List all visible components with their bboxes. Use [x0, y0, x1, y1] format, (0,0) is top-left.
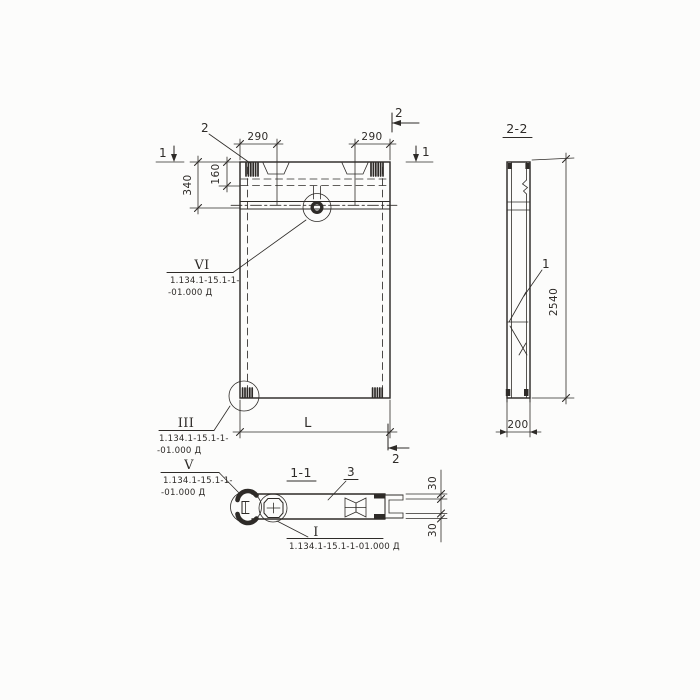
cut2-bottom-label: 2 [392, 452, 400, 466]
lifting-loop-detail [303, 186, 331, 222]
detail-circle-bottom-left [229, 381, 259, 411]
dim-L-label: L [304, 416, 312, 431]
dim-340-label: 340 [182, 174, 194, 195]
callout-i-numeral: I [313, 525, 319, 540]
dim-160-label: 160 [210, 163, 222, 184]
callout-i-line1: 1.134.1-15.1-1-01.000 Д [289, 542, 400, 552]
bar-right-end [374, 494, 403, 520]
callout-iii-line2: -01.000 Д [157, 446, 202, 456]
dim-200-label: 200 [507, 419, 528, 431]
cut2-top-label: 2 [395, 106, 403, 120]
callout-vi-line2: -01.000 Д [168, 288, 213, 298]
cut-mark-1-right: 1 [406, 145, 433, 162]
dim-200: 200 [496, 401, 541, 437]
dim-30-bottom-label: 30 [427, 523, 439, 537]
dim-2540: 2540 [532, 153, 574, 404]
detail-2-label: 2 [201, 121, 209, 135]
main-view [229, 162, 397, 411]
dim-L: L [233, 400, 397, 438]
side-part-1-label: 1 [542, 257, 550, 271]
dim-30-top-label: 30 [427, 476, 439, 490]
callout-iii-numeral: III [178, 416, 195, 431]
callout-vi: VI 1.134.1-15.1-1- -01.000 Д [167, 220, 306, 298]
dim-290-right-label: 290 [361, 131, 382, 143]
callout-v-line1: 1.134.1-15.1-1- [163, 476, 233, 486]
section-1-1-title: 1-1 [290, 465, 312, 480]
section-2-2-title: 2-2 [506, 121, 528, 136]
dim-30-pair: 30 30 [406, 470, 447, 542]
drawing-sheet: 2 1 1 2 2 290 290 [0, 0, 700, 700]
dim-290-left-label: 290 [247, 131, 268, 143]
anchor-hatch-top-right [371, 163, 383, 176]
section-1-1: 1-1 3 [231, 465, 448, 542]
side-part-1: 1 [524, 257, 550, 296]
section-2-2-internal [507, 292, 528, 355]
anchor-hatch-bottom-left [243, 388, 253, 397]
callout-v-numeral: V [183, 458, 194, 473]
callout-i: I 1.134.1-15.1-1-01.000 Д [277, 521, 400, 552]
recess-trapezoid-left [263, 163, 289, 174]
keyway-detail [259, 494, 287, 522]
cut-mark-2-top-right: 2 [392, 106, 419, 132]
anchor-hatch-top-left [246, 163, 258, 176]
bowtie-keyway [345, 498, 366, 517]
cut1-right-label: 1 [422, 145, 430, 159]
bottom-part-3-label: 3 [347, 465, 355, 479]
bar-body [252, 494, 385, 519]
hidden-top-lines [241, 179, 389, 186]
callout-vi-line1: 1.134.1-15.1-1- [170, 276, 240, 286]
callout-v-line2: -01.000 Д [161, 488, 206, 498]
dim-290-right: 290 [349, 131, 396, 205]
anchor-hatch-bottom-right [373, 388, 383, 397]
dim-2540-label: 2540 [548, 288, 560, 316]
panel-outline [240, 162, 390, 398]
cut1-left-label: 1 [159, 146, 167, 160]
hidden-edge-lines [248, 167, 383, 393]
section-2-2: 2-2 1 [496, 121, 574, 437]
callout-vi-numeral: VI [193, 258, 209, 273]
bar-left-end [231, 491, 262, 523]
callout-v: V 1.134.1-15.1-1- -01.000 Д [161, 458, 241, 498]
bottom-part-3: 3 [328, 465, 358, 500]
callout-iii-line1: 1.134.1-15.1-1- [159, 434, 229, 444]
cut-mark-1-left: 1 [156, 146, 184, 162]
callout-iii: III 1.134.1-15.1-1- -01.000 Д [157, 406, 230, 456]
panel-drawing: 2 1 1 2 2 290 290 [0, 0, 700, 700]
